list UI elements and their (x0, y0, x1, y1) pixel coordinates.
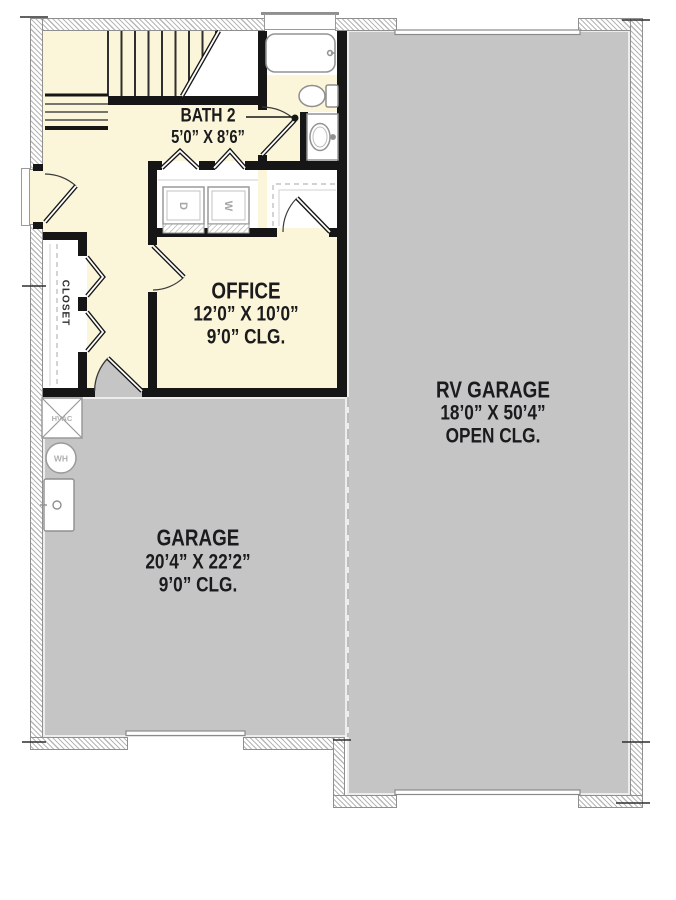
svg-text:HVAC: HVAC (52, 414, 73, 423)
bath-label-leader (246, 115, 299, 122)
closet-label: CLOSET (60, 280, 71, 327)
garage-entry-door (95, 358, 142, 397)
svg-text:D: D (177, 202, 189, 210)
bathtub (266, 34, 335, 72)
plan-annotations: D W HVAC WH (0, 0, 676, 900)
office-name: OFFICE (211, 280, 280, 303)
bath2-dims: 5’0” X 8’6” (171, 128, 245, 146)
water-heater: WH (46, 443, 76, 473)
svg-text:W: W (222, 201, 234, 212)
office-dims: 12’0” X 10’0” (193, 304, 298, 325)
svg-text:WH: WH (54, 454, 68, 464)
rv-garage-dims: 18’0” X 50’4” (440, 403, 545, 424)
rv-garage-name: RV GARAGE (436, 379, 550, 402)
washer: W (208, 187, 249, 233)
office-ceiling: 9’0” CLG. (207, 327, 285, 348)
laundry-bifold-doors (162, 151, 245, 168)
rv-garage-ceiling: OPEN CLG. (446, 426, 541, 447)
sink-vanity (307, 114, 338, 160)
closet-bifold-doors (87, 257, 103, 351)
office-closet-door (283, 198, 330, 232)
bath2-name: BATH 2 (180, 107, 235, 126)
floor-plan: D W HVAC WH (0, 0, 676, 900)
garage-dims: 20’4” X 22’2” (145, 552, 250, 573)
bath-door (262, 107, 295, 155)
dryer: D (163, 187, 204, 233)
exterior-door (33, 164, 76, 229)
utility-sink (40, 479, 74, 531)
toilet (299, 85, 338, 107)
office-door (153, 246, 184, 290)
garage-ceiling: 9’0” CLG. (159, 575, 237, 596)
hvac-unit: HVAC (42, 398, 82, 438)
garage-name: GARAGE (157, 527, 240, 550)
